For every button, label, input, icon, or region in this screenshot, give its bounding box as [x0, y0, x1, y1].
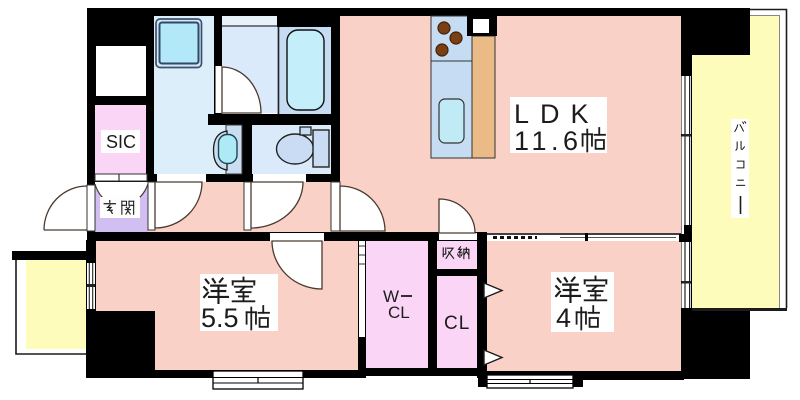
svg-text:5.5: 5.5 — [201, 303, 239, 333]
svg-text:CL: CL — [388, 303, 410, 322]
svg-text:SIC: SIC — [106, 132, 136, 152]
svg-text:11.6: 11.6 — [514, 126, 583, 156]
svg-text:LDK: LDK — [514, 99, 600, 129]
svg-text:4: 4 — [556, 303, 571, 333]
svg-text:CL: CL — [444, 313, 470, 334]
